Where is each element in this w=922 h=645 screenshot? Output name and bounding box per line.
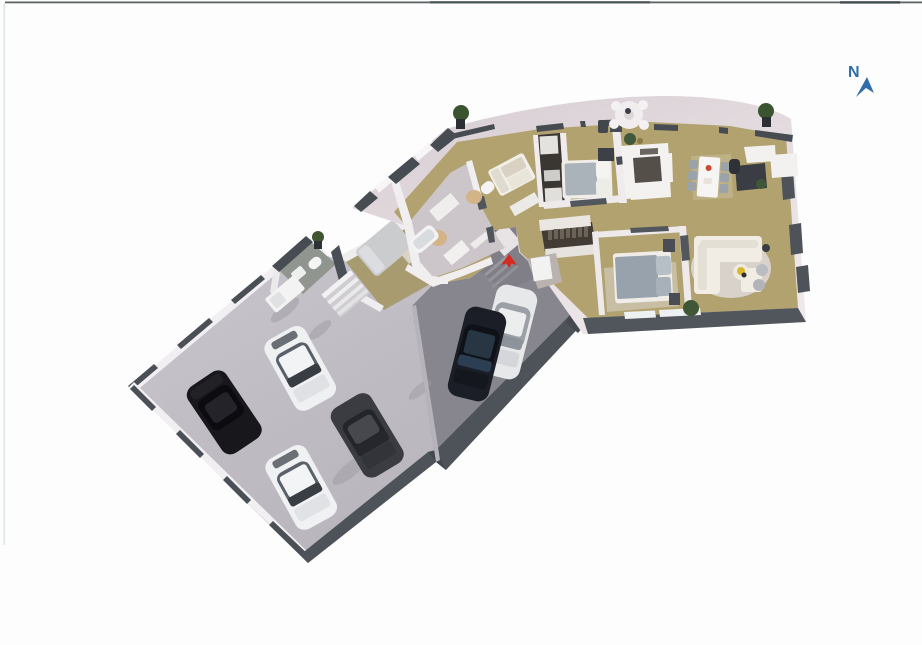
svg-text:N: N (848, 64, 860, 81)
